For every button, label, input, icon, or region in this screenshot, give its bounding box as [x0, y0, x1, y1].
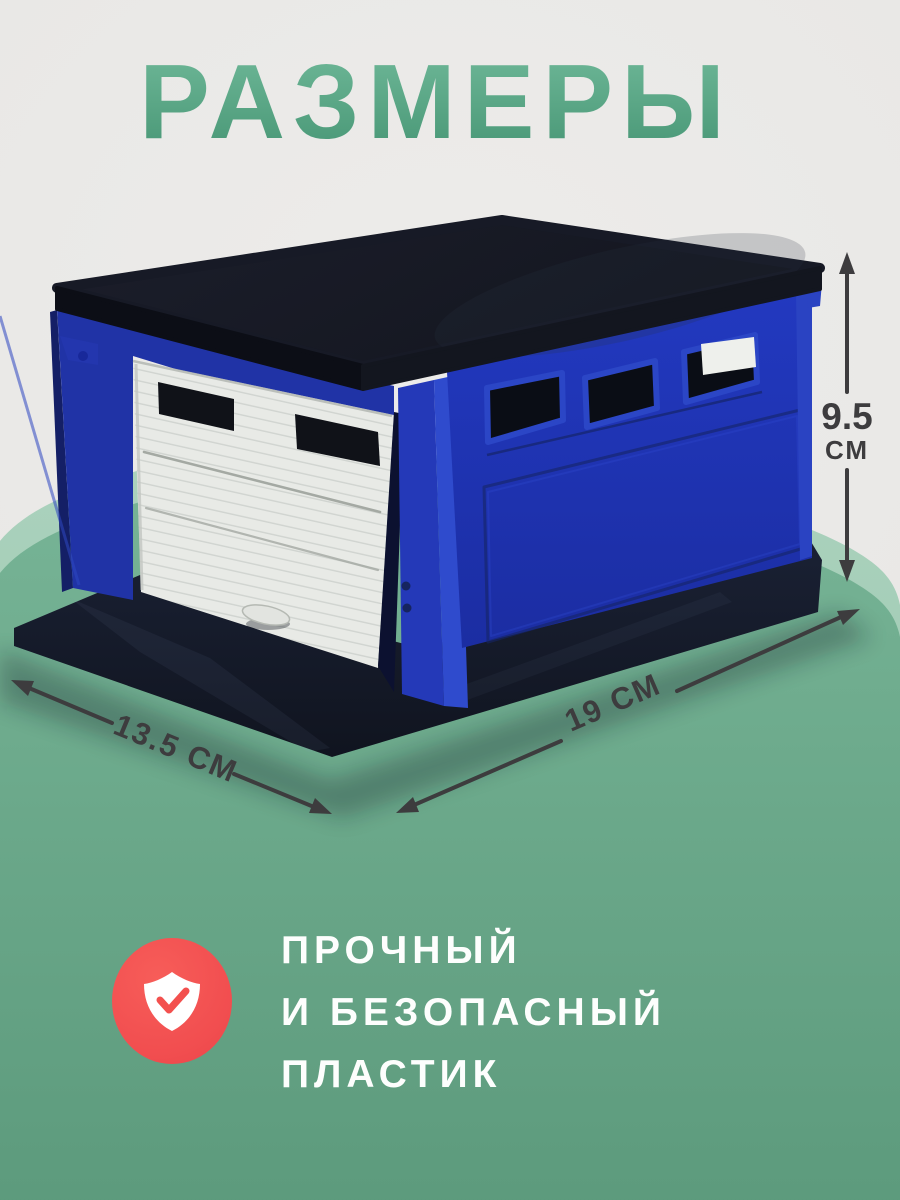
column-detail	[403, 604, 412, 613]
feature-line: ПРОЧНЫЙ	[281, 920, 841, 982]
safety-badge	[112, 938, 232, 1064]
feature-line: И БЕЗОПАСНЫЙ	[281, 982, 841, 1044]
height-value-label: 9.5	[821, 396, 872, 437]
column-detail	[402, 582, 411, 591]
feature-text: ПРОЧНЫЙ И БЕЗОПАСНЫЙ ПЛАСТИК	[281, 920, 841, 1106]
product-infographic: 9.5 СМ 19 СМ 13.5 СМ РАЗМЕРЫ ПРОЧНЫ	[0, 0, 900, 1200]
height-unit-label: СМ	[825, 435, 869, 465]
dimension-height: 9.5 СМ	[821, 252, 872, 582]
pillar-bracket-detail	[78, 351, 88, 361]
shield-check-icon	[139, 965, 205, 1037]
page-title: РАЗМЕРЫ	[0, 52, 886, 152]
feature-line: ПЛАСТИК	[281, 1044, 841, 1106]
